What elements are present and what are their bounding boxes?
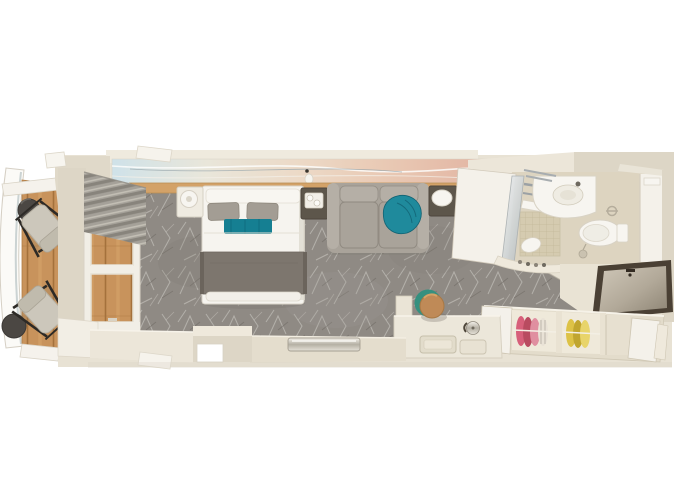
stub-notch xyxy=(197,344,223,362)
wardrobe-divider-2 xyxy=(600,313,606,355)
window-pane-lower xyxy=(91,274,133,322)
bed-bolster xyxy=(206,189,300,203)
window-mullion xyxy=(91,265,133,274)
table-lamp-right xyxy=(432,190,452,206)
toilet xyxy=(579,220,628,246)
door-panel xyxy=(599,266,667,314)
pillow-right xyxy=(247,202,279,220)
sofa xyxy=(327,183,429,255)
bathroom xyxy=(452,164,664,273)
side-table xyxy=(429,186,457,216)
reading-light xyxy=(305,174,313,184)
toilet-tank xyxy=(617,224,628,242)
faucet xyxy=(576,182,581,187)
sofa-seat-cushion-1 xyxy=(340,202,378,248)
window-latch xyxy=(108,318,117,321)
desk-tray-2 xyxy=(460,340,486,354)
wardrobe-compartment-empty xyxy=(606,315,630,355)
nightstand-right xyxy=(301,188,328,219)
sofa-back-cushion-1 xyxy=(340,186,378,202)
pillow-left xyxy=(208,202,240,220)
wardrobe xyxy=(480,306,668,362)
door-handle xyxy=(626,269,635,272)
cup-2 xyxy=(314,200,320,206)
towel-stack xyxy=(644,178,660,185)
cup-1 xyxy=(307,195,313,201)
nightstand-left xyxy=(177,187,203,217)
divider-tab-top xyxy=(45,152,66,168)
bed-throw xyxy=(203,252,304,294)
bed-foot-band xyxy=(206,292,301,301)
entry-door xyxy=(592,260,673,320)
stateroom-floorplan-render xyxy=(0,0,680,491)
wardrobe-divider-1 xyxy=(556,311,562,353)
threshold-strip xyxy=(288,338,360,351)
reading-light-dot xyxy=(305,169,309,173)
wall-stub xyxy=(193,326,252,362)
bath-counter-right xyxy=(640,174,664,262)
bed xyxy=(200,186,307,309)
